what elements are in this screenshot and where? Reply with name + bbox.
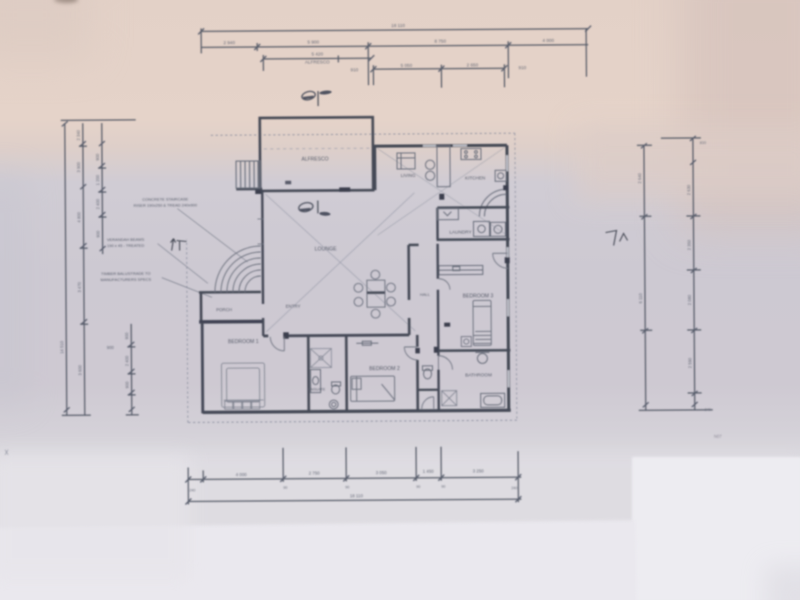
- svg-text:ENTRY: ENTRY: [286, 304, 301, 309]
- svg-text:4 000: 4 000: [542, 38, 554, 43]
- svg-text:910: 910: [351, 67, 359, 72]
- svg-text:N07: N07: [714, 434, 722, 439]
- svg-text:2 640: 2 640: [637, 172, 642, 183]
- svg-text:3 600: 3 600: [77, 364, 82, 375]
- svg-text:2 940: 2 940: [223, 40, 235, 45]
- svg-text:5 050: 5 050: [401, 63, 413, 68]
- svg-text:900: 900: [107, 345, 115, 350]
- svg-text:BATHROOM: BATHROOM: [465, 372, 492, 377]
- svg-text:HALL: HALL: [420, 292, 431, 297]
- svg-text:4 800: 4 800: [76, 211, 81, 222]
- svg-text:900: 900: [125, 381, 130, 389]
- svg-text:ALFRESCO: ALFRESCO: [302, 156, 329, 162]
- svg-text:PORCH: PORCH: [216, 307, 232, 312]
- svg-text:VERANDAH BEAMS: VERANDAH BEAMS: [107, 237, 145, 242]
- svg-text:900: 900: [124, 332, 129, 340]
- svg-text:2 650: 2 650: [467, 62, 479, 67]
- svg-text:2 400: 2 400: [124, 355, 129, 366]
- svg-text:4 000: 4 000: [236, 472, 248, 477]
- svg-text:2 590: 2 590: [687, 357, 692, 368]
- svg-text:1 450: 1 450: [423, 469, 435, 474]
- svg-text:RISER 190x250 & TREAD 240x900: RISER 190x250 & TREAD 240x900: [134, 202, 198, 207]
- svg-text:2 340: 2 340: [76, 129, 81, 140]
- svg-text:18 110: 18 110: [350, 493, 364, 498]
- svg-text:3 900: 3 900: [76, 161, 81, 172]
- svg-text:2 400: 2 400: [95, 198, 100, 209]
- svg-text:BEDROOM 2: BEDROOM 2: [369, 366, 400, 372]
- svg-text:6 110: 6 110: [638, 293, 643, 304]
- svg-text:190 x 45 - TREATED: 190 x 45 - TREATED: [107, 243, 144, 248]
- svg-text:KITCHEN: KITCHEN: [465, 175, 485, 180]
- svg-text:910: 910: [519, 65, 527, 70]
- svg-text:LAUNDRY: LAUNDRY: [449, 229, 472, 234]
- svg-text:900: 900: [95, 153, 100, 161]
- svg-text:1 200: 1 200: [95, 174, 100, 185]
- svg-text:TIMBER BALUSTRADE TO: TIMBER BALUSTRADE TO: [101, 271, 150, 276]
- svg-text:2 750: 2 750: [309, 471, 321, 476]
- svg-text:3 050: 3 050: [376, 470, 388, 475]
- svg-text:240: 240: [705, 408, 711, 412]
- svg-text:2 630: 2 630: [686, 184, 691, 195]
- svg-text:5 420: 5 420: [312, 52, 324, 57]
- svg-text:3 470: 3 470: [77, 281, 82, 292]
- svg-text:LIVING: LIVING: [401, 173, 416, 178]
- svg-text:ENSUITE: ENSUITE: [308, 387, 326, 392]
- svg-text:240: 240: [189, 488, 195, 492]
- svg-text:3 250: 3 250: [473, 468, 485, 473]
- svg-text:2 350: 2 350: [687, 239, 692, 250]
- svg-text:240: 240: [511, 486, 517, 490]
- svg-text:90: 90: [416, 485, 420, 489]
- svg-text:14 510: 14 510: [59, 340, 64, 354]
- svg-text:90: 90: [441, 485, 445, 489]
- svg-text:90: 90: [283, 486, 287, 490]
- svg-text:CONCRETE STAIRCASE: CONCRETE STAIRCASE: [142, 196, 188, 201]
- svg-text:ALFRESCO: ALFRESCO: [305, 59, 330, 64]
- svg-text:810: 810: [700, 141, 706, 145]
- svg-text:5 900: 5 900: [307, 40, 319, 45]
- svg-text:LOUNGE: LOUNGE: [315, 246, 337, 252]
- svg-text:18 110: 18 110: [391, 23, 405, 28]
- svg-text:BEDROOM 3: BEDROOM 3: [463, 293, 494, 299]
- svg-text:MANUFACTURERS SPECS: MANUFACTURERS SPECS: [100, 277, 151, 282]
- svg-text:90: 90: [345, 485, 349, 489]
- svg-text:900: 900: [96, 230, 101, 238]
- svg-text:8 750: 8 750: [434, 39, 446, 44]
- svg-text:2 080: 2 080: [687, 294, 692, 305]
- svg-text:BEDROOM 1: BEDROOM 1: [228, 339, 259, 345]
